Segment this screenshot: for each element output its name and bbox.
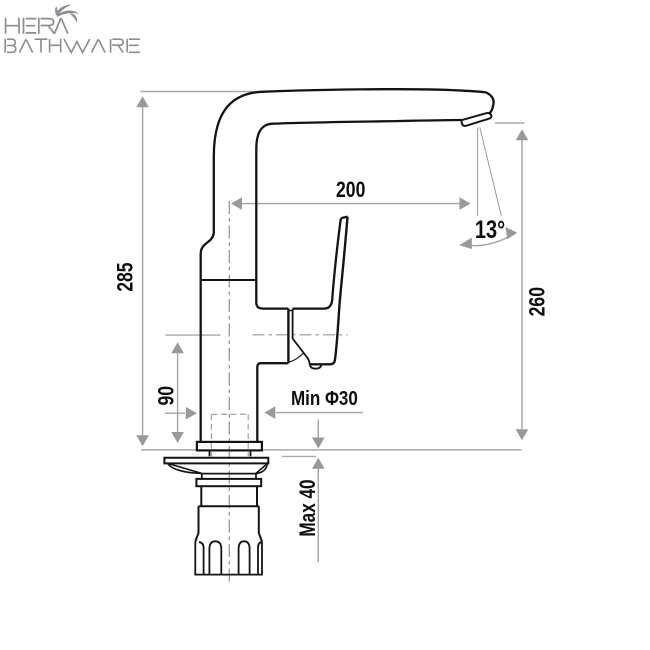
- svg-text:13°: 13°: [475, 216, 505, 244]
- svg-text:90: 90: [155, 386, 179, 406]
- svg-text:Max 40: Max 40: [296, 479, 321, 536]
- svg-text:260: 260: [526, 287, 550, 316]
- svg-text:Min Φ30: Min Φ30: [291, 387, 358, 410]
- svg-text:200: 200: [336, 178, 365, 202]
- svg-text:285: 285: [114, 262, 138, 291]
